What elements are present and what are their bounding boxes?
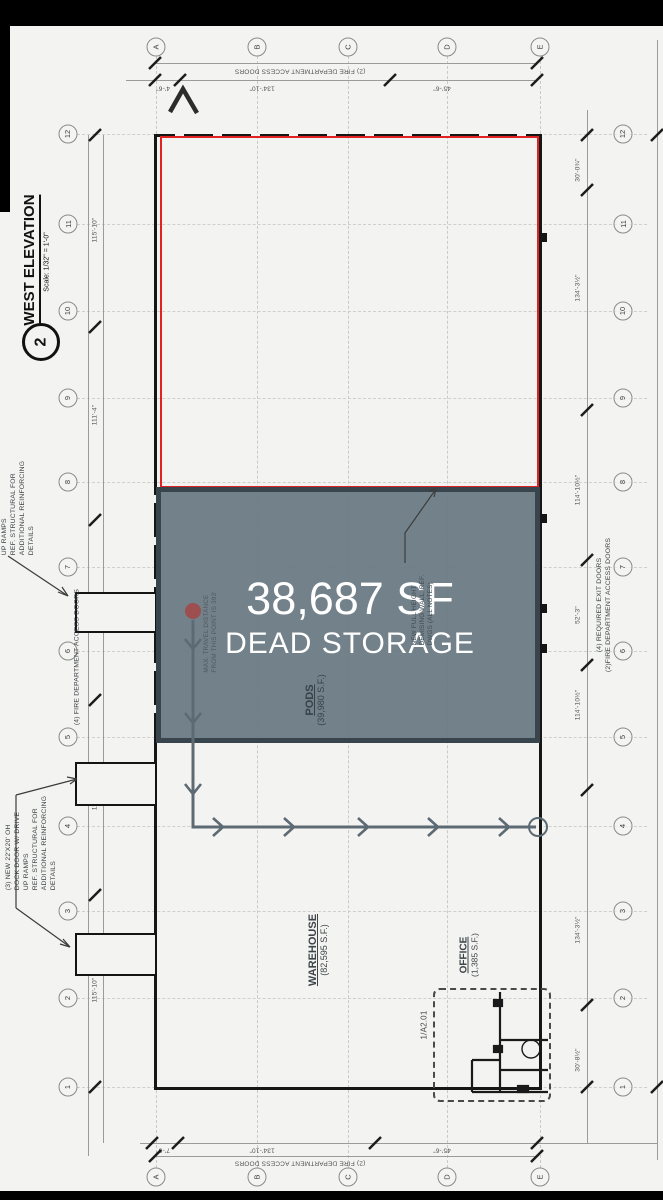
grid-bubble-col-D-bottom: D [438,1168,457,1187]
grid-bubble-label: 6 [63,649,72,653]
grid-bubble-row-9-right: 9 [614,389,633,408]
dim-bottom-0: 7'-6" [156,1147,170,1154]
office-label: OFFICE (1,385 S.F.) [459,933,480,977]
grid-bubble-row-11-left: 11 [59,215,78,234]
grid-bubble-row-3-left: 3 [59,902,78,921]
note-line: UP RAMPS [22,796,31,890]
grid-bubble-col-E-top: E [531,38,550,57]
office-callout-box [433,988,551,1102]
grid-bubble-row-7-right: 7 [614,558,633,577]
grid-bubble-label: B [252,1174,261,1179]
note-line: DWGS (ALL NOTES) [427,575,435,646]
grid-bubble-label: 11 [618,220,627,228]
grid-bubble-col-A-top: A [147,38,166,57]
grid-bubble-row-5-left: 5 [59,728,78,747]
grid-bubble-label: 7 [618,565,627,569]
grid-bubble-label: B [252,44,261,49]
dock-ramp-2 [75,762,157,806]
grid-bubble-label: 10 [619,307,628,315]
grid-bubble-label: 3 [618,909,627,913]
grid-bubble-label: D [442,1174,451,1179]
grid-bubble-label: 10 [64,307,73,315]
dim-top-2: 45'-6" [433,85,451,92]
top-dim-line-inner [126,80,537,81]
dim-right-4: 114'-10½" [575,690,582,721]
office-detail-ref: 1/A2.01 [420,1011,429,1040]
left-dim-line-1 [88,135,89,1156]
grid-bubble-label: 8 [618,480,627,484]
office-name: OFFICE [459,933,470,977]
grid-bubble-label: C [343,44,352,49]
grid-bubble-col-E-bottom: E [531,1168,550,1187]
pods-area: (39,980 S.F.) [316,674,326,726]
note-demising-wall: NEW FULL HEIGHTDEMISING WALL, REF.DWGS (… [411,575,435,646]
note-line: ADDITIONAL REINFORCING [40,796,49,890]
note-line: REF. STRUCTURAL FOR [31,796,40,890]
grid-bubble-label: 12 [64,130,73,138]
grid-bubble-label: 8 [63,480,72,484]
note-line: DOCK DOOR W/ DRIVE [13,796,22,890]
grid-bubble-label: A [151,44,160,49]
dim-right-3: 52'-3" [575,606,582,624]
note-line: (2)FIRE DEPARTMENT ACCESS DOORS [604,538,613,672]
grid-bubble-label: 5 [63,735,72,739]
dim-left-4: 115'-10" [92,978,99,1003]
dock-ramp-3 [75,933,157,976]
note-left-upper: UP RAMPSREF. STRUCTURAL FORADDITIONAL RE… [0,461,36,555]
dim-right-6: 30'-8½" [575,1048,582,1071]
note-bottom-fire-access: (2) FIRE DEPARTMENT ACCESS DOORS [235,1160,366,1167]
dim-right-2: 114'-10½" [575,475,582,506]
grid-bubble-row-3-right: 3 [614,902,633,921]
grid-bubble-row-4-left: 4 [59,817,78,836]
dim-top-1: 134'-10" [249,85,274,92]
grid-bubble-col-C-top: C [339,38,358,57]
drawing-scale: Scale: 1/32" = 1'-0" [44,232,51,291]
note-line: DETAILS [27,461,36,555]
note-left-wall: (4) FIRE DEPARTMENT ACCESS DOORS [73,589,82,725]
note-line: UP RAMPS [0,461,9,555]
left-black-strip [0,26,10,212]
grid-bubble-row-8-left: 8 [59,473,78,492]
grid-bubble-col-C-bottom: C [339,1168,358,1187]
bottom-dim-line-inner [140,1143,657,1144]
dim-bottom-2: 45'-6" [433,1147,451,1154]
note-top-fire-access: (2) FIRE DEPARTMENT ACCESS DOORS [235,68,366,75]
dim-right-0: 30'-0¾" [575,158,582,181]
grid-bubble-label: D [442,44,451,49]
grid-bubble-row-2-right: 2 [614,989,633,1008]
grid-bubble-label: C [343,1174,352,1179]
grid-bubble-row-4-right: 4 [614,817,633,836]
note-line: (3) NEW 22'X20' OH [4,796,13,890]
red-area-outline [160,136,539,488]
top-dim-line-outer [155,63,537,64]
note-line: REF. STRUCTURAL FOR [9,461,18,555]
note-travel-distance: MAX. TRAVEL DISTANCEFROM THIS POINT IS 3… [203,591,219,672]
grid-bubble-label: 2 [618,996,627,1000]
grid-bubble-row-7-left: 7 [59,558,78,577]
floorplan-screenshot: AABBCCDDEE121211111010998877665544332211… [0,0,663,1200]
grid-bubble-row-12-left: 12 [59,125,78,144]
warehouse-label: WAREHOUSE (82,595 S.F.) [307,914,329,986]
grid-bubble-row-1-right: 1 [614,1078,633,1097]
note-right-wall: (4) REQUIRED EXIT DOORS(2)FIRE DEPARTMEN… [595,538,613,672]
top-black-bar [0,0,663,26]
note-line: (4) REQUIRED EXIT DOORS [595,538,604,672]
grid-bubble-row-10-left: 10 [59,302,78,321]
dim-left-1: 111'-4" [92,405,99,426]
note-line: FROM THIS POINT IS 393' [211,591,219,672]
grid-bubble-label: 1 [618,1085,627,1089]
dim-bottom-1: 134'-10" [249,1147,274,1154]
dock-ramp-1 [75,592,157,633]
grid-bubble-label: 4 [63,824,72,828]
grid-bubble-row-2-left: 2 [59,989,78,1008]
dim-top-0: 4'-6" [156,85,170,92]
grid-bubble-row-11-right: 11 [614,215,633,234]
right-dim-line [587,110,588,1143]
right-boundary-line [657,40,658,1160]
dim-right-1: 134'-3½" [575,274,582,301]
note-left-lower: (3) NEW 22'X20' OHDOCK DOOR W/ DRIVEUP R… [4,796,58,890]
grid-bubble-label: 3 [63,909,72,913]
warehouse-area: (82,595 S.F.) [319,914,329,986]
pods-label: PODS (39,980 S.F.) [304,674,326,726]
dim-left-0: 115'-10" [92,218,99,243]
grid-bubble-label: 9 [63,396,72,400]
note-line: NEW FULL HEIGHT [411,575,419,646]
bottom-black-bar [0,1191,663,1200]
grid-bubble-label: A [151,1174,160,1179]
dim-right-5: 134'-3½" [575,916,582,943]
grid-bubble-col-D-top: D [438,38,457,57]
grid-bubble-row-5-right: 5 [614,728,633,747]
grid-bubble-label: 11 [63,220,72,228]
grid-bubble-col-B-bottom: B [248,1168,267,1187]
office-area: (1,385 S.F.) [470,933,480,977]
note-line: ADDITIONAL REINFORCING [18,461,27,555]
bottom-dim-line-outer [155,1156,537,1157]
grid-bubble-col-A-bottom: A [147,1168,166,1187]
note-line: MAX. TRAVEL DISTANCE [203,591,211,672]
left-dim-line-2 [103,135,104,1143]
grid-bubble-label: 12 [619,130,628,138]
grid-bubble-col-B-top: B [248,38,267,57]
grid-bubble-label: 2 [63,996,72,1000]
grid-bubble-label: 6 [618,649,627,653]
note-line: DEMISING WALL, REF. [419,575,427,646]
grid-bubble-row-9-left: 9 [59,389,78,408]
grid-bubble-row-8-right: 8 [614,473,633,492]
grid-bubble-row-10-right: 10 [614,302,633,321]
grid-bubble-label: 9 [618,396,627,400]
grid-bubble-label: 4 [618,824,627,828]
grid-bubble-label: E [535,44,544,49]
detail-number-bubble: 2 [22,323,60,361]
drawing-title: WEST ELEVATION [21,194,41,325]
grid-bubble-row-6-right: 6 [614,642,633,661]
warehouse-name: WAREHOUSE [307,914,319,986]
grid-bubble-row-12-right: 12 [614,125,633,144]
grid-bubble-label: 5 [618,735,627,739]
grid-bubble-label: E [535,1174,544,1179]
note-line: DETAILS [49,796,58,890]
grid-bubble-row-1-left: 1 [59,1078,78,1097]
grid-bubble-label: 1 [63,1085,72,1089]
highlight-label-text: DEAD STORAGE [225,627,475,661]
grid-bubble-label: 7 [63,565,72,569]
detail-number: 2 [32,338,50,347]
pods-name: PODS [304,674,316,726]
